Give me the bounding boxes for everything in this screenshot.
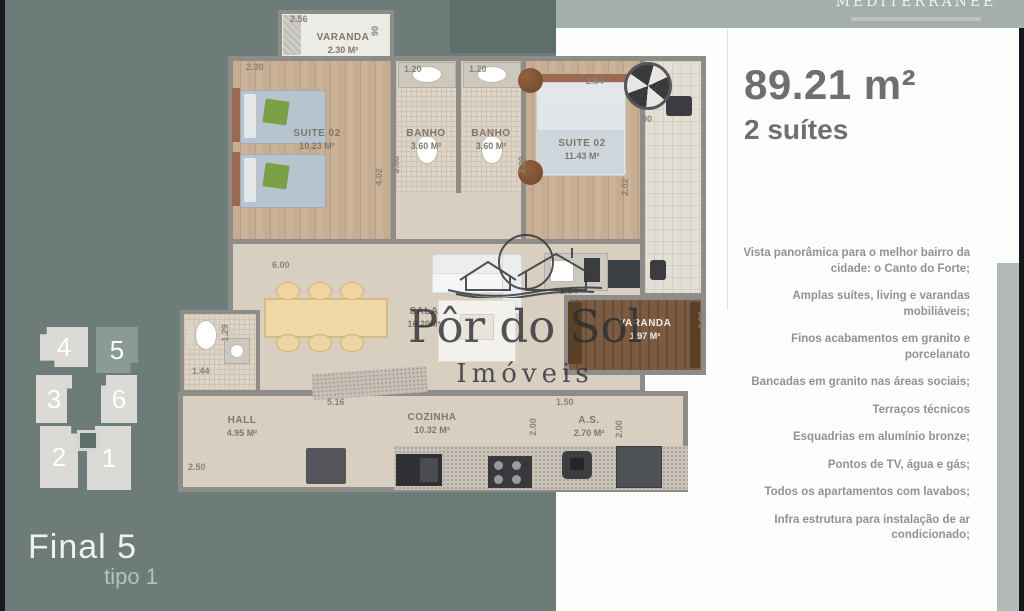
room-label-varanda: VARANDA 1.97 M² (600, 318, 690, 342)
dim-label: 6.86 (697, 311, 707, 329)
terrace-equipment (650, 260, 666, 280)
pillow (244, 158, 256, 202)
burner (494, 475, 503, 484)
unit-number: 3 (47, 384, 61, 415)
feature-item: Infra estrutura para instalação de ar co… (734, 513, 970, 544)
feature-list: Vista panorâmica para o melhor bairro da… (734, 246, 970, 556)
dim-label: 4.02 (374, 168, 384, 186)
total-area: 89.21 m² (744, 64, 916, 106)
toilet-tank (188, 322, 194, 348)
laundry-tub-basin (570, 458, 584, 470)
feature-item: Amplas suítes, living e varandas mobiliá… (734, 289, 970, 320)
room-label-hall: HALL 4.95 M² (202, 415, 282, 439)
dim-label: 1.20 (404, 64, 422, 74)
feature-item: Terraços técnicos (734, 403, 970, 419)
brand-tagline-decoration (851, 17, 981, 21)
feature-item: Bancadas em granito nas áreas sociais; (734, 375, 970, 391)
dim-label: 3.00 (517, 156, 527, 174)
dim-label: 5.16 (327, 397, 345, 407)
dim-label: 1.20 (469, 64, 487, 74)
feature-item: Pontos de TV, água e gás; (734, 458, 970, 474)
unit-number: 5 (110, 335, 124, 366)
keyplan-unit-3: 3 (36, 375, 72, 423)
round-side-table (518, 68, 543, 93)
summary-panel: 89.21 m² 2 suítes (744, 64, 916, 146)
final-label: Final 5 (28, 528, 158, 567)
bed-headboard (232, 88, 240, 142)
unit-number: 2 (52, 442, 66, 473)
dim-label: 90 (370, 26, 380, 36)
counter-appliance (584, 258, 600, 282)
dining-table (264, 298, 388, 338)
toilet (195, 320, 217, 350)
pillow (541, 87, 579, 102)
dining-chair (276, 282, 300, 300)
left-dark-edge (0, 0, 5, 611)
bed-headboard (532, 74, 628, 82)
coffee-table (460, 314, 494, 340)
dim-label: 2.54 (586, 76, 604, 86)
oven-door (420, 458, 438, 482)
dim-label: 1.29 (220, 324, 230, 342)
dim-label: 2.00 (528, 418, 538, 436)
burner (512, 461, 521, 470)
dim-label: 2.00 (614, 420, 624, 438)
tipo-label: tipo 1 (46, 564, 158, 590)
dining-chair (308, 282, 332, 300)
brand-logo-text: MEDITERRANÉE (806, 0, 1024, 10)
keyplan-elevator-core (77, 430, 99, 451)
dim-label: 1.84 (560, 286, 578, 296)
room-label-banho-2: BANHO 3.60 M² (458, 128, 524, 152)
dining-chair (340, 334, 364, 352)
dim-label: 90 (642, 114, 652, 124)
pillow (583, 87, 621, 102)
top-banner: MEDITERRANÉE (556, 0, 1024, 28)
dim-label: 1.50 (556, 397, 574, 407)
bed-throw (262, 162, 289, 189)
feature-item: Vista panorâmica para o melhor bairro da… (734, 246, 970, 277)
wc-sink (230, 344, 244, 358)
dining-chair (276, 334, 300, 352)
feature-item: Todos os apartamentos com lavabos; (734, 485, 970, 501)
right-accent-strip (997, 263, 1019, 611)
hall-cabinet (306, 448, 346, 484)
keyplan-unit-6: 6 (101, 375, 137, 423)
compass-icon (624, 62, 672, 110)
listing-page: MEDITERRANÉE (0, 0, 1024, 611)
pillow (244, 94, 256, 138)
keyplan-unit-4: 4 (40, 327, 88, 367)
tv (608, 260, 640, 288)
stove (488, 456, 532, 488)
deck-bench (568, 302, 582, 364)
room-label-cozinha: COZINHA 10.32 M² (382, 412, 482, 436)
dining-chair (308, 334, 332, 352)
suite-count: 2 suítes (744, 114, 916, 146)
corridor (396, 193, 521, 243)
dim-label: 3.00 (391, 156, 401, 174)
unit-number: 4 (57, 332, 71, 363)
keyplan-unit-5-selected: 5 (96, 327, 138, 373)
dim-label: 1.44 (192, 366, 210, 376)
room-label-sala: SALA 16.20M² (384, 306, 464, 330)
floor-plan: VARANDA 2.30 M² SUITE 02 10.23 M² BANHO … (172, 10, 728, 492)
keyplan-unit-2: 2 (40, 426, 78, 488)
unit-number: 1 (102, 443, 116, 474)
dim-label: 2.50 (188, 462, 206, 472)
dim-label: 2.30 (246, 62, 264, 72)
counter-sink (550, 260, 574, 282)
room-label-suite-right: SUITE 02 11.43 M² (532, 138, 632, 162)
dining-chair (340, 282, 364, 300)
feature-item: Finos acabamentos em granito e porcelana… (734, 332, 970, 363)
washer (616, 446, 662, 488)
burner (512, 475, 521, 484)
bed-headboard (232, 152, 240, 206)
dim-label: 2.02 (620, 178, 630, 196)
terrace-equipment (666, 96, 692, 116)
burner (494, 461, 503, 470)
right-dark-edge (1019, 28, 1024, 611)
room-label-banho-1: BANHO 3.60 M² (393, 128, 459, 152)
unit-number: 6 (112, 384, 126, 415)
bed-throw (262, 98, 289, 125)
dim-label: 6.00 (272, 260, 290, 270)
room-label-suite-left: SUITE 02 10.23 M² (272, 128, 362, 152)
dim-label: 2.56 (290, 14, 308, 24)
feature-item: Esquadrias em alumínio bronze; (734, 430, 970, 446)
